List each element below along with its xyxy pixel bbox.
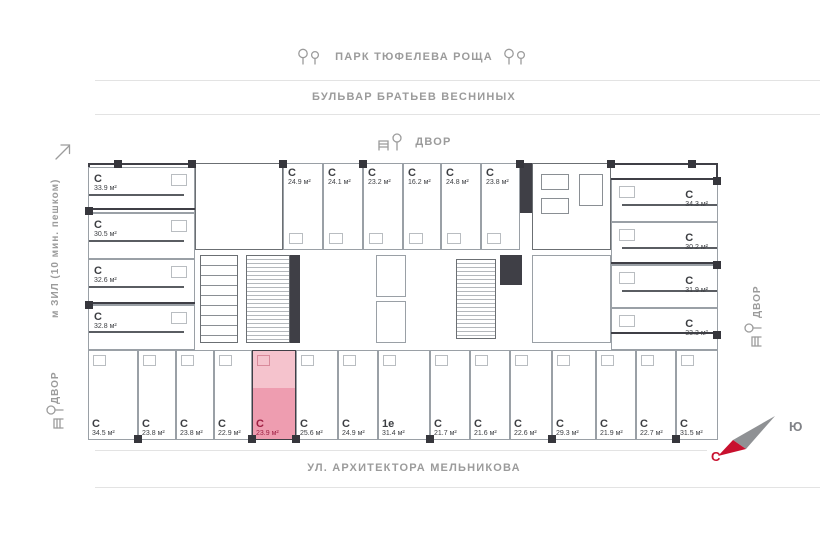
column-marker [607, 160, 615, 168]
direction-arrow-icon [52, 140, 74, 162]
apartment-unit[interactable]: С21.7 м² [430, 350, 470, 440]
wall [611, 178, 718, 180]
wall [88, 208, 195, 210]
apartment-unit[interactable]: С29.3 м² [552, 350, 596, 440]
apartment-unit[interactable]: С25.6 м² [296, 350, 338, 440]
park-name: ПАРК ТЮФЕЛЕВА РОЩА [335, 51, 493, 63]
apartment-unit[interactable]: С32.6 м² [88, 259, 195, 305]
apartment-unit[interactable]: С33.3 м² [611, 308, 718, 350]
apartment-unit[interactable]: С23.8 м² [481, 163, 520, 250]
apartment-unit[interactable]: С30.5 м² [88, 213, 195, 259]
playground-icon [45, 401, 65, 431]
apartment-unit[interactable]: С34.3 м² [611, 179, 718, 222]
divider [95, 487, 820, 488]
column-marker [292, 435, 300, 443]
column-marker [516, 160, 524, 168]
apartment-unit[interactable]: С22.9 м² [214, 350, 252, 440]
column-marker [688, 160, 696, 168]
apartment-unit[interactable]: С30.2 м² [611, 222, 718, 265]
column-marker [359, 160, 367, 168]
apartment-unit[interactable]: С34.5 м² [88, 350, 138, 440]
column-marker [188, 160, 196, 168]
compass-north-label: С [711, 449, 720, 464]
apartment-unit[interactable]: С24.9 м² [283, 163, 323, 250]
elevator-shaft [500, 255, 522, 285]
wall [88, 302, 195, 304]
yard-right-label: ДВОР [752, 266, 763, 318]
column-marker [248, 435, 256, 443]
commercial-room [195, 163, 283, 250]
apartment-unit[interactable]: 1е31.4 м² [378, 350, 430, 440]
wall [611, 262, 718, 264]
column-marker [713, 261, 721, 269]
divider [95, 80, 820, 81]
yard-top-label: ДВОР [0, 132, 828, 152]
column-marker [114, 160, 122, 168]
utility-room [376, 255, 406, 297]
floor-plan-page: ПАРК ТЮФЕЛЕВА РОЩА БУЛЬВАР БРАТЬЕВ ВЕСНИ… [0, 0, 828, 555]
apartment-unit[interactable]: С32.8 м² [88, 305, 195, 350]
corridor-room [532, 255, 611, 343]
column-marker [548, 435, 556, 443]
divider [95, 450, 707, 451]
stairwell [456, 259, 496, 339]
utility-room [532, 163, 611, 250]
column-marker [85, 207, 93, 215]
playground-icon [376, 132, 406, 152]
divider [95, 114, 820, 115]
elevator-shaft [520, 163, 532, 213]
apartment-unit[interactable]: С22.6 м² [510, 350, 552, 440]
trees-icon [502, 48, 532, 65]
apartment-unit[interactable]: С23.8 м² [138, 350, 176, 440]
apartment-unit[interactable]: С23.2 м² [363, 163, 403, 250]
apartment-unit[interactable]: С21.9 м² [596, 350, 636, 440]
apartment-unit[interactable]: С24.8 м² [441, 163, 481, 250]
compass-south-label: Ю [789, 419, 802, 434]
apartment-unit[interactable]: С24.1 м² [323, 163, 363, 250]
column-marker [713, 331, 721, 339]
street-bottom-label: УЛ. АРХИТЕКТОРА МЕЛЬНИКОВА [0, 462, 828, 474]
park-label: ПАРК ТЮФЕЛЕВА РОЩА [0, 48, 828, 65]
building-floor-plan: С33.9 м² С30.5 м² С32.6 м² С32.8 м² С24.… [88, 163, 718, 440]
metro-label: м ЗИЛ (10 мин. пешком) [50, 168, 61, 318]
apartment-unit[interactable]: С23.8 м² [176, 350, 214, 440]
apartment-unit[interactable]: С31.5 м² [676, 350, 718, 440]
apartment-unit[interactable]: С33.9 м² [88, 167, 195, 213]
apartment-unit[interactable]: С24.9 м² [338, 350, 378, 440]
utility-room [376, 301, 406, 343]
column-marker [713, 177, 721, 185]
apartment-unit[interactable]: С21.6 м² [470, 350, 510, 440]
storage-room [200, 255, 238, 343]
yard-left-label: ДВОР [50, 352, 61, 404]
stairwell [246, 255, 290, 343]
apartment-unit[interactable]: С22.7 м² [636, 350, 676, 440]
trees-icon [296, 48, 326, 65]
column-marker [279, 160, 287, 168]
apartment-unit[interactable]: С16.2 м² [403, 163, 441, 250]
boulevard-label: БУЛЬВАР БРАТЬЕВ ВЕСНИНЫХ [0, 91, 828, 103]
column-marker [85, 301, 93, 309]
playground-icon [743, 319, 763, 349]
elevator-shaft [290, 255, 300, 343]
apartment-unit-selected[interactable]: С23.9 м² [252, 350, 296, 440]
apartment-unit[interactable]: С31.9 м² [611, 265, 718, 308]
compass-needle-icon [715, 413, 785, 461]
column-marker [672, 435, 680, 443]
column-marker [134, 435, 142, 443]
column-marker [426, 435, 434, 443]
